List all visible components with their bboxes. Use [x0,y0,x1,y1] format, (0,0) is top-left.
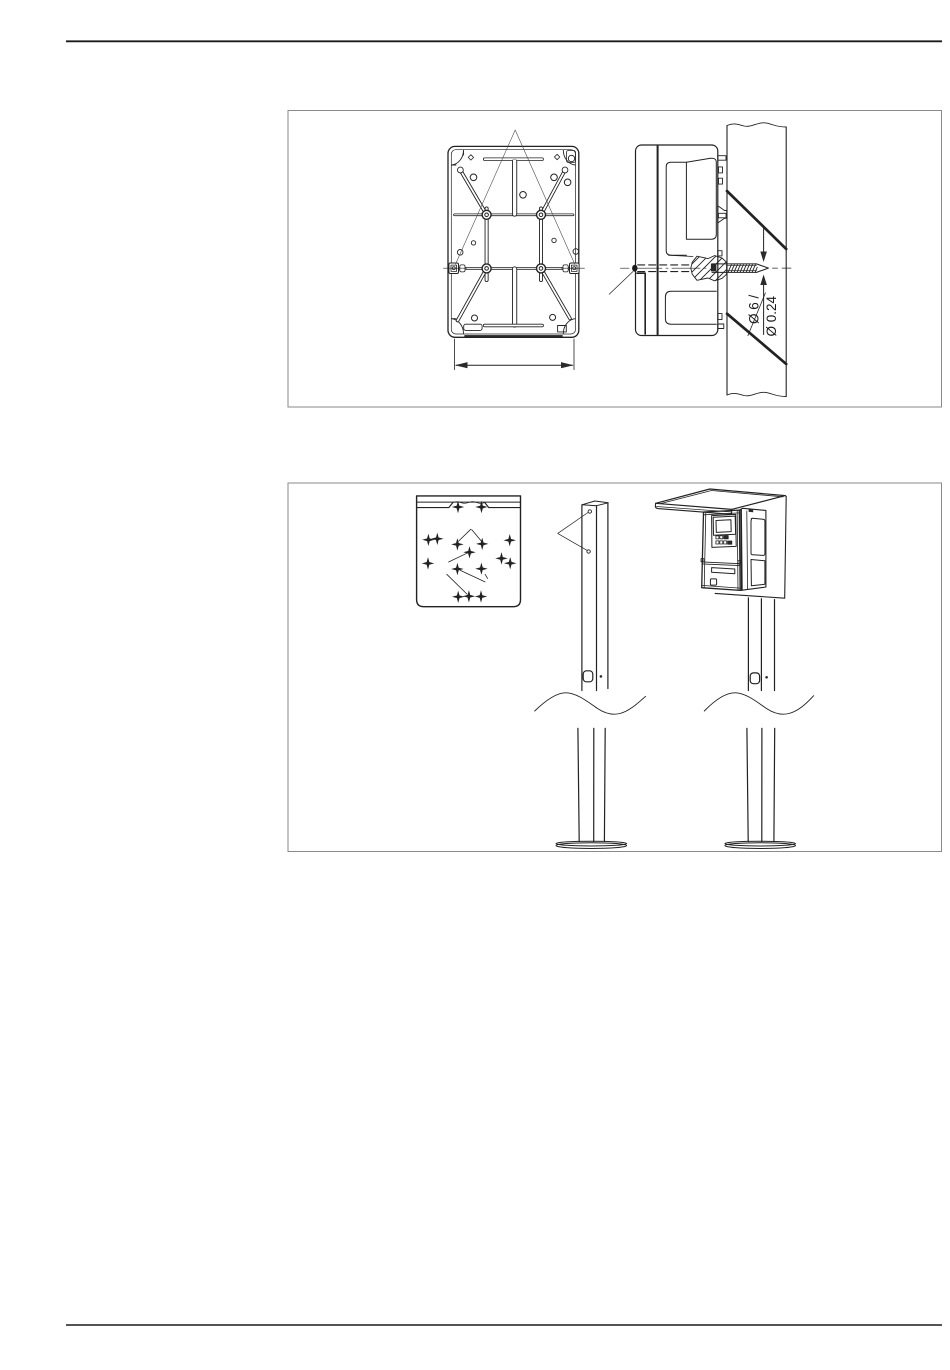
svg-text:Ø 6 /: Ø 6 / [747,294,762,324]
svg-text:Ø 0.24: Ø 0.24 [764,295,779,336]
